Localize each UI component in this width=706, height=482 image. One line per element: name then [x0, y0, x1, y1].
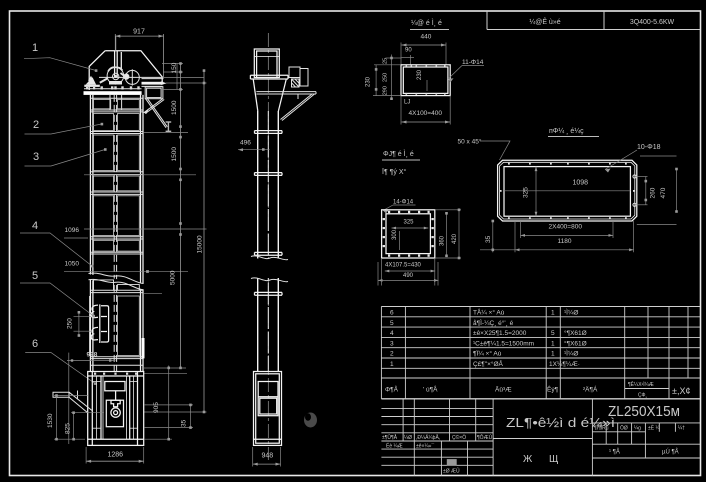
svg-text:¶Ê¼X¹Ì¼Æ: ¶Ê¼X¹Ì¼Æ [628, 380, 654, 388]
svg-text:¹Ì¼Ø: ¹Ì¼Ø [564, 349, 578, 358]
svg-text:2: 2 [390, 351, 394, 358]
svg-text:±È ¼: ±È ¼ [648, 425, 660, 432]
svg-text:2X400=800: 2X400=800 [549, 224, 583, 231]
svg-text:¶Î¶ÎRù: ¶Î¶ÎRù [594, 425, 609, 432]
svg-text:948: 948 [262, 453, 274, 460]
svg-text:1: 1 [551, 351, 555, 358]
svg-text:6: 6 [32, 338, 38, 350]
svg-text:25: 25 [382, 58, 388, 64]
svg-text:±ê×¼»¯: ±ê×¼»¯ [416, 442, 434, 449]
svg-text:2: 2 [33, 119, 39, 131]
svg-text:µÚ ¶Å: µÚ ¶Å [662, 449, 679, 456]
svg-text:ÇФ¸: ÇФ¸ [638, 393, 647, 399]
svg-text:Éè ¼Æ: Éè ¼Æ [386, 442, 403, 449]
svg-text:420: 420 [452, 233, 458, 244]
svg-text:Êý¶: Êý¶ [547, 385, 559, 394]
svg-text:300: 300 [392, 229, 398, 240]
svg-text:1: 1 [551, 340, 555, 347]
svg-text:Щ: Щ [549, 454, 558, 465]
svg-text:5000: 5000 [170, 270, 177, 285]
svg-text:¼@ é Ì¸ é: ¼@ é Ì¸ é [411, 18, 442, 27]
svg-text:¼@Ê ù»é: ¼@Ê ù»é [529, 17, 560, 26]
svg-text:360: 360 [440, 235, 446, 246]
svg-text:3Q400-5.6KW: 3Q400-5.6KW [630, 19, 675, 26]
svg-text:±,X¢: ±,X¢ [672, 386, 690, 396]
svg-text:490: 490 [403, 273, 414, 279]
svg-text:11-Φ14: 11-Φ14 [462, 59, 484, 66]
svg-text:14-Φ14: 14-Φ14 [393, 200, 414, 206]
svg-text:¹ ¶Å: ¹ ¶Å [609, 449, 620, 456]
svg-text:Ï¶ ¶ý X°: Ï¶ ¶ý X° [382, 168, 407, 176]
svg-text:¹C±ê¶¼1.5=1500mm: ¹C±ê¶¼1.5=1500mm [473, 340, 534, 347]
svg-text:°¶X61Ø: °¶X61Ø [564, 329, 587, 337]
svg-text:10-Φ18: 10-Φ18 [637, 144, 661, 151]
svg-text:¼g: ¼g [634, 426, 641, 432]
svg-text:Ãû³Æ: Ãû³Æ [495, 385, 512, 394]
svg-text:290: 290 [382, 86, 388, 95]
svg-text:TÅ¼ ×° Aù: TÅ¼ ×° Aù [473, 308, 505, 317]
svg-text:496: 496 [240, 140, 251, 147]
svg-text:998: 998 [87, 351, 98, 358]
svg-text:15000: 15000 [197, 235, 204, 253]
svg-text:230: 230 [417, 69, 423, 80]
svg-text:4: 4 [32, 220, 38, 232]
svg-text:1: 1 [390, 361, 394, 368]
svg-text:1530: 1530 [47, 413, 54, 428]
svg-text:1: 1 [32, 42, 38, 54]
svg-text:¹Ì¼Ø: ¹Ì¼Ø [564, 308, 578, 317]
svg-text:²Ä¶Á: ²Ä¶Á [583, 385, 598, 394]
svg-text:35: 35 [181, 419, 188, 427]
svg-text:1050: 1050 [65, 261, 80, 268]
svg-text:1: 1 [551, 310, 555, 317]
svg-text:90: 90 [405, 48, 412, 54]
svg-text:¶ÔÆÚ: ¶ÔÆÚ [477, 434, 493, 441]
svg-text:905: 905 [153, 402, 160, 413]
svg-text:3: 3 [33, 151, 39, 163]
svg-text:35: 35 [485, 235, 492, 243]
svg-text:325: 325 [404, 220, 415, 226]
svg-text:6: 6 [390, 310, 394, 317]
svg-text:3: 3 [390, 340, 394, 347]
svg-text:440: 440 [421, 34, 432, 41]
svg-text:5: 5 [390, 320, 394, 327]
svg-text:917: 917 [133, 29, 145, 36]
svg-text:ZL250X15м: ZL250X15м [608, 404, 680, 420]
svg-text:¶Ï¼ ×° Aù: ¶Ï¼ ×° Aù [473, 350, 502, 358]
svg-text:±ê×X25¶1.5=2000: ±ê×X25¶1.5=2000 [473, 330, 527, 337]
svg-text:825: 825 [65, 423, 72, 434]
svg-text:250: 250 [67, 318, 74, 329]
svg-text:260: 260 [650, 187, 657, 198]
svg-text:5: 5 [32, 270, 38, 282]
svg-text:5: 5 [551, 330, 555, 337]
svg-text:1500: 1500 [171, 147, 178, 162]
svg-text:,Ð¼Ä¼þÅ,: ,Ð¼Ä¼þÅ, [416, 434, 440, 441]
svg-text:¼Ø: ¼Ø [404, 435, 412, 441]
svg-text:±Ø ÆÛ: ±Ø ÆÛ [443, 468, 460, 475]
svg-text:LJ: LJ [404, 100, 410, 106]
svg-text:±¶Û¶Å: ±¶Û¶Å [382, 434, 398, 441]
svg-text:250: 250 [382, 73, 388, 82]
svg-text:4X100=400: 4X100=400 [409, 110, 443, 117]
svg-text:°¶X61Ø: °¶X61Ø [564, 339, 587, 347]
svg-text:50 x 45°: 50 x 45° [458, 138, 482, 146]
svg-text:ÖØ: ÖØ [620, 425, 628, 432]
svg-text:¼†: ¼† [678, 426, 685, 432]
svg-text:1098: 1098 [573, 180, 589, 187]
svg-text:230: 230 [365, 76, 371, 87]
svg-text:470: 470 [660, 187, 667, 198]
svg-text:1500: 1500 [171, 100, 178, 115]
svg-text:1X¼¶¼Æ·: 1X¼¶¼Æ· [549, 361, 580, 368]
svg-text:1286: 1286 [108, 452, 124, 459]
svg-text:4: 4 [390, 330, 394, 337]
svg-text:Ç©×Ö: Ç©×Ö [452, 434, 466, 441]
svg-text:Ж: Ж [523, 454, 533, 465]
svg-text:Ç£¶"×°ØÅ: Ç£¶"×°ØÅ [473, 359, 504, 368]
svg-text:1096: 1096 [65, 227, 80, 234]
svg-text:ΦJ¶ é Ì¸ é: ΦJ¶ é Ì¸ é [383, 149, 414, 158]
svg-text:150: 150 [171, 62, 178, 73]
svg-text:пΦ¼ ¸ é¼ç: пΦ¼ ¸ é¼ç [549, 128, 584, 135]
svg-text:' ú¶Å: ' ú¶Å [423, 385, 438, 394]
svg-text:å¶Ì-¼Ç¸ é°'¸ é: å¶Ì-¼Ç¸ é°'¸ é [473, 318, 514, 327]
svg-text:4X107.5=430: 4X107.5=430 [385, 263, 422, 269]
svg-text:325: 325 [523, 187, 530, 198]
svg-text:1180: 1180 [558, 238, 572, 245]
svg-text:Φ¶Å: Φ¶Å [385, 385, 399, 394]
